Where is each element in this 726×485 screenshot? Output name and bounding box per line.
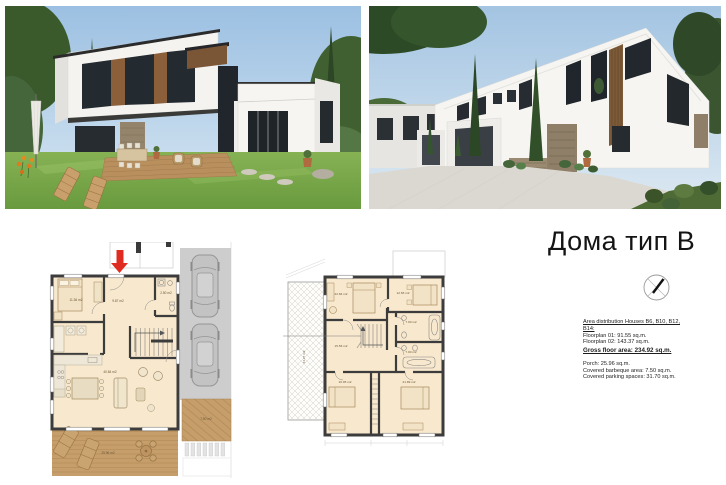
boundary-box [183, 458, 231, 476]
room-label-porch: 25.96 m2 [101, 451, 115, 455]
summary-floorplan-01: Floorplan 01: 91.55 sq.m. [583, 333, 715, 340]
room-label-bedroom-br: 21.89 m2 [403, 380, 416, 384]
summary-porch: Porch: 25.96 sq.m. [583, 361, 715, 368]
photo-garden-render [5, 6, 361, 209]
summary-heading-line1: Area distribution Houses B6, B10, B12, [583, 319, 715, 326]
ground-floor-drawing: 11.36 m2 9.87 m2 2.50 m2 40.84 m2 25.96 … [8, 242, 240, 481]
dimension-line [325, 440, 443, 446]
room-label-hall: 9.87 m2 [112, 299, 124, 303]
car-bottom [191, 324, 220, 386]
room-label-terrace: 24.27 m2 [302, 350, 306, 363]
room-label-wc: 2.50 m2 [160, 291, 172, 295]
dining-set [66, 378, 104, 399]
roof-terrace [288, 282, 325, 420]
room-label-living: 40.84 m2 [103, 370, 117, 374]
room-label-bedroom-tr: 12.65 m2 [397, 291, 410, 295]
porch-deck [52, 426, 178, 476]
garden-render-scene [5, 6, 361, 209]
summary-floorplan-02: Floorplan 02: 143.37 sq.m. [583, 339, 715, 346]
summary-gross-area: Gross floor area: 234.92 sq.m. [583, 347, 715, 355]
room-label-bath2: 7.00 m2 [405, 350, 416, 354]
terracotta-pot [583, 150, 591, 167]
room-label-barbeque: 7.50 m2 [200, 417, 212, 421]
room-label-bedroom-bl: 16.95 m2 [339, 380, 352, 384]
page-title: Дома тип B [548, 226, 726, 257]
plan-upper-floor: 22.84 m2 12.65 m2 7.00 m2 7.00 m2 15.56 … [283, 247, 463, 449]
photo-street-render [369, 6, 721, 209]
garden-boulder [312, 169, 334, 179]
car-top [191, 255, 220, 317]
leader-line [286, 259, 325, 275]
roof-outline [393, 251, 445, 277]
street-render-scene [369, 6, 721, 209]
summary-heading-line2: B14: [583, 326, 715, 333]
leader-line [286, 262, 325, 278]
presentation-sheet: 11.36 m2 9.87 m2 2.50 m2 40.84 m2 25.96 … [0, 0, 726, 485]
north-compass-icon [641, 272, 672, 303]
room-label-hall: 15.56 m2 [335, 344, 348, 348]
room-label-bath1: 7.00 m2 [405, 320, 416, 324]
covered-parking [180, 248, 231, 400]
room-label-bedroom: 11.36 m2 [69, 298, 82, 302]
garden-steps [185, 443, 225, 456]
summary-barbeque: Covered barbeque area: 7.50 sq.m. [583, 368, 715, 375]
area-summary: Area distribution Houses B6, B10, B12, B… [583, 319, 715, 381]
summary-parking: Covered parking spaces: 31.70 sq.m. [583, 374, 715, 381]
plan-ground-floor: 11.36 m2 9.87 m2 2.50 m2 40.84 m2 25.96 … [8, 242, 240, 481]
staircase [135, 328, 173, 356]
room-label-bedroom-tl: 22.84 m2 [335, 292, 348, 296]
upper-floor-drawing: 22.84 m2 12.65 m2 7.00 m2 7.00 m2 15.56 … [283, 247, 463, 449]
